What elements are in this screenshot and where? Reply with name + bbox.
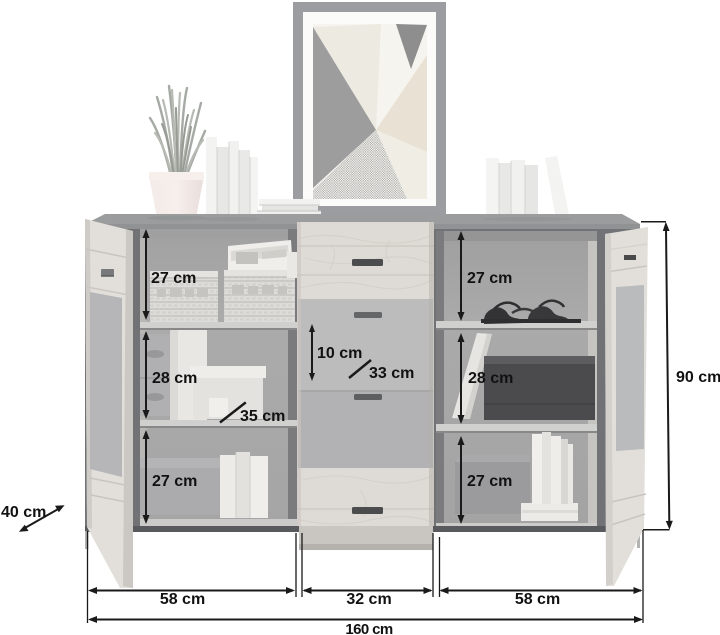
svg-text:10 cm: 10 cm (317, 345, 362, 362)
svg-text:58 cm: 58 cm (160, 591, 205, 608)
svg-text:40 cm: 40 cm (1, 504, 46, 521)
svg-text:27 cm: 27 cm (467, 270, 512, 287)
svg-text:160 cm: 160 cm (345, 621, 393, 635)
svg-text:28 cm: 28 cm (152, 370, 197, 387)
svg-text:27 cm: 27 cm (467, 473, 512, 490)
svg-text:27 cm: 27 cm (152, 473, 197, 490)
svg-text:58 cm: 58 cm (515, 591, 560, 608)
svg-text:90 cm: 90 cm (676, 369, 720, 386)
svg-text:33 cm: 33 cm (369, 365, 414, 382)
svg-text:27 cm: 27 cm (151, 270, 196, 287)
svg-text:32 cm: 32 cm (346, 591, 391, 608)
svg-text:35 cm: 35 cm (240, 408, 285, 425)
svg-text:28 cm: 28 cm (468, 370, 513, 387)
